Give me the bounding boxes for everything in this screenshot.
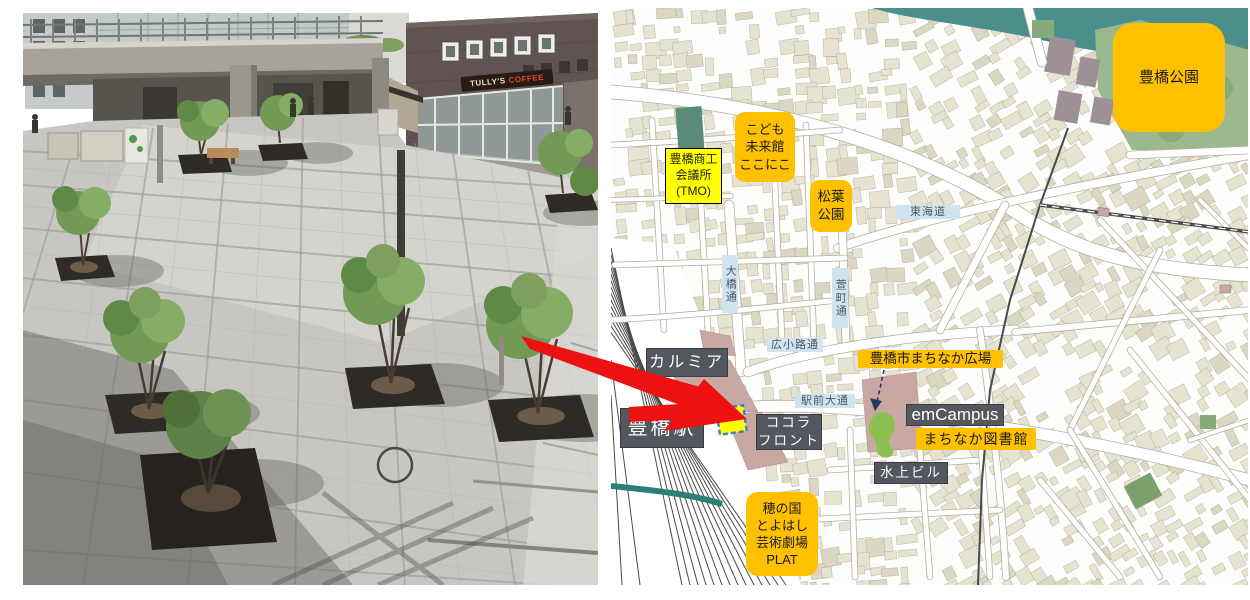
map-label-emcampus: emCampus — [906, 404, 1004, 426]
map-label-matsuba-park: 松葉 公園 — [810, 180, 852, 232]
chamber-building — [675, 106, 704, 153]
map-label-hirokoji-dori: 広小路通 — [767, 338, 823, 352]
figure: TULLY'S COFFEE — [0, 0, 1250, 600]
plaza-photo-illustration — [23, 13, 598, 585]
plaza-photo: TULLY'S COFFEE — [23, 13, 598, 585]
plaza-location-marker — [716, 405, 746, 435]
map-label-ekimae-odori: 駅前大通 — [795, 394, 855, 408]
map-label-machinaka-hiroba: 豊橋市まちなか広場 — [858, 350, 1003, 368]
map-label-calmia: カルミア — [646, 348, 728, 377]
tullys-sign-word1: TULLY'S — [470, 76, 506, 88]
map-label-kodomo-mirai-kan: こども 未来館 ここにこ — [735, 112, 795, 182]
map-label-kayamachi-dori: 萱町通 — [832, 268, 848, 328]
map-label-machinaka-library: まちなか図書館 — [916, 428, 1036, 450]
map-label-plat-theatre: 穂の国 とよはし 芸術劇場 PLAT — [746, 492, 818, 576]
map-label-toyohashi-station: 豊橋駅 — [620, 408, 704, 448]
map-label-suijo-building: 水上ビル — [874, 462, 948, 484]
map-label-tokaido: 東海道 — [896, 205, 960, 219]
tullys-sign-word2: COFFEE — [508, 73, 544, 85]
map-label-chamber-of-commerce: 豊橋商工 会議所 (TMO) — [665, 148, 722, 204]
city-map: 豊橋公園 豊橋商工 会議所 (TMO) こども 未来館 ここにこ 松葉 公園 東… — [611, 8, 1248, 585]
map-label-toyohashi-park: 豊橋公園 — [1113, 23, 1225, 132]
map-label-ohashi-dori: 大橋通 — [722, 255, 738, 313]
map-label-cocola-front: ココラ フロント — [756, 414, 822, 450]
